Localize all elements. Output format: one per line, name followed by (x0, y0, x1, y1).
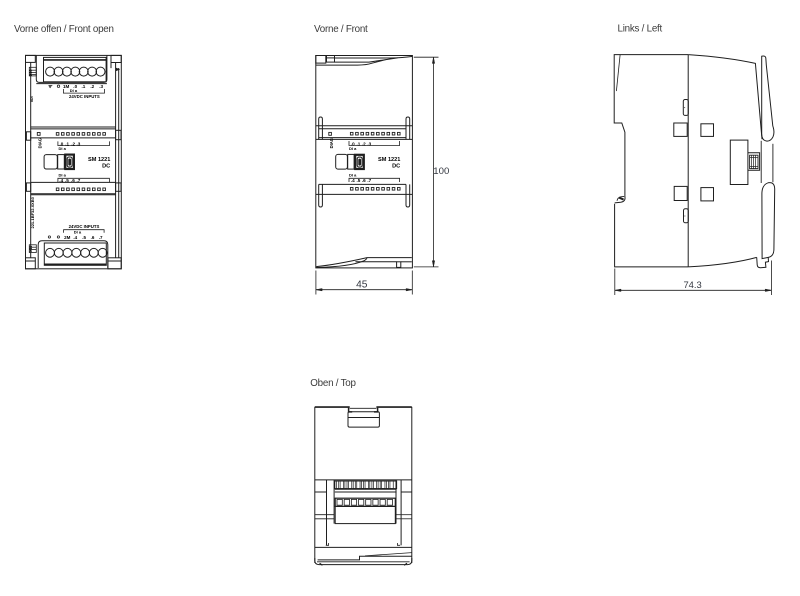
svg-text:8DI: 8DI (30, 96, 34, 102)
svg-text:Oben / Top: Oben / Top (310, 378, 356, 389)
svg-text:DI a: DI a (59, 146, 67, 151)
svg-text:24VDC INPUTS: 24VDC INPUTS (69, 224, 100, 229)
svg-text:DIAG: DIAG (329, 138, 334, 148)
svg-text:100: 100 (433, 166, 449, 177)
svg-text:.7: .7 (367, 178, 371, 183)
svg-text:.4: .4 (351, 178, 355, 183)
svg-text:X11: X11 (29, 246, 33, 252)
svg-text:DC: DC (102, 163, 110, 169)
svg-text:1M: 1M (63, 84, 70, 89)
svg-text:.1: .1 (82, 84, 86, 89)
svg-text:.6: .6 (362, 178, 366, 183)
svg-text:221-1BF32-0XB0: 221-1BF32-0XB0 (30, 196, 35, 228)
svg-text:.6: .6 (91, 235, 95, 240)
svg-text:.7: .7 (99, 235, 103, 240)
svg-text:DI a: DI a (349, 172, 357, 177)
svg-text:DI a: DI a (74, 230, 82, 235)
svg-text:2M: 2M (64, 235, 71, 240)
svg-text:.4: .4 (73, 235, 77, 240)
svg-text:.5: .5 (357, 178, 361, 183)
svg-text:74.3: 74.3 (683, 279, 701, 290)
svg-text:DI a: DI a (349, 146, 357, 151)
svg-text:DIAG: DIAG (38, 138, 43, 148)
svg-text:X10: X10 (29, 69, 33, 75)
svg-text:DI a: DI a (70, 88, 78, 93)
svg-text:Links / Left: Links / Left (618, 24, 663, 35)
svg-text:DI a: DI a (59, 172, 67, 177)
svg-text:SM 1221: SM 1221 (88, 157, 110, 163)
svg-text:SM 1221: SM 1221 (378, 157, 400, 163)
svg-text:Vorne offen / Front open: Vorne offen / Front open (14, 24, 114, 35)
svg-text:.5: .5 (82, 235, 86, 240)
svg-text:Vorne / Front: Vorne / Front (314, 24, 368, 35)
svg-text:45: 45 (356, 280, 368, 291)
svg-text:DC: DC (392, 163, 400, 169)
svg-text:.2: .2 (90, 84, 94, 89)
svg-text:24VDC INPUTS: 24VDC INPUTS (69, 94, 100, 99)
svg-text:.3: .3 (99, 84, 103, 89)
